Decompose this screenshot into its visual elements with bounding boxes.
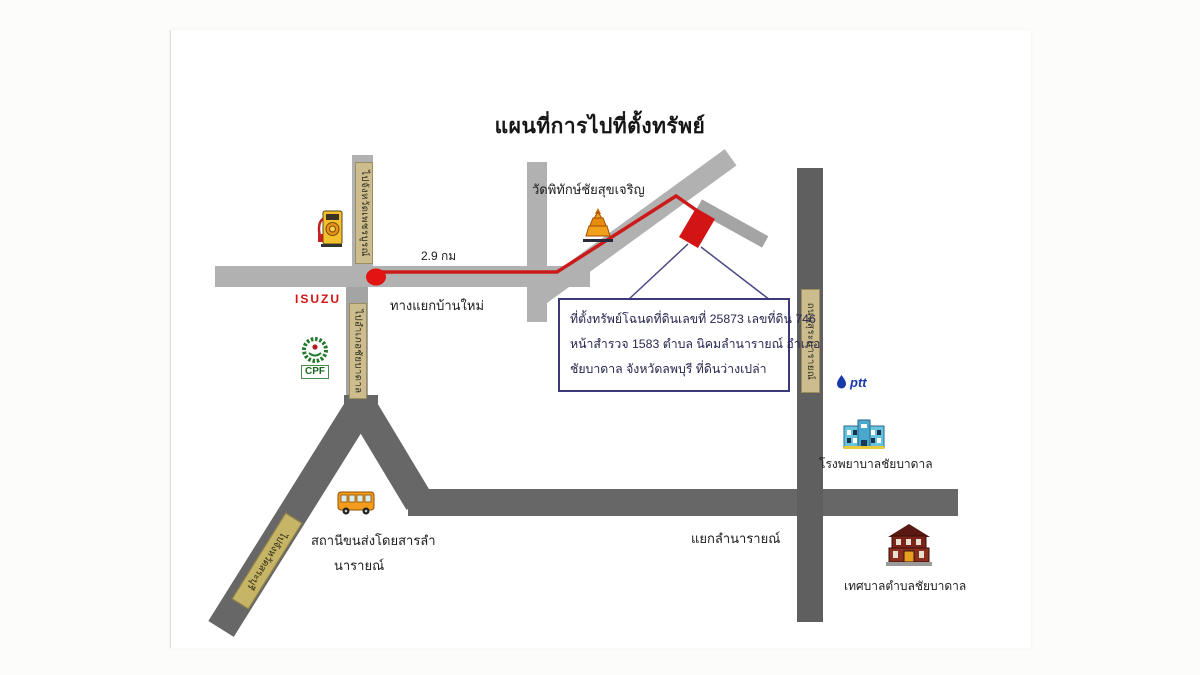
property-info-line2: หน้าสำรวจ 1583 ตำบล นิคมลำนารายณ์ อำเภอ [570, 332, 778, 357]
scanned-map-document: แผนที่การไปที่ตั้งทรัพย์ ไปจังหวัดเพชรบู… [0, 0, 1200, 675]
callout-line-left [628, 244, 688, 300]
ptt-flame-icon [836, 374, 847, 391]
banmai-junction-label: ทางแยกบ้านใหม่ [390, 295, 484, 316]
cpf-logo: CPF [296, 335, 334, 379]
municipality-label: เทศบาลตำบลชัยบาดาล [844, 577, 966, 596]
lamnarai-junction-label: แยกลำนารายณ์ [691, 528, 780, 549]
ptt-logo-text: ptt [850, 375, 867, 390]
isuzu-logo-text: ISUZU [295, 292, 341, 306]
cpf-logo-text: CPF [301, 365, 329, 379]
temple-label: วัดพิทักษ์ชัยสุขเจริญ [532, 179, 645, 200]
gas-station-icon [317, 209, 344, 248]
property-info-box: ที่ตั้งทรัพย์โฉนดที่ดินเลขที่ 25873 เลขท… [558, 298, 790, 392]
temple-icon [582, 207, 614, 243]
bus-terminal-label-line2: นารายณ์ [334, 555, 384, 576]
bus-icon [336, 489, 376, 516]
property-marker [679, 208, 715, 248]
distance-label: 2.9 กม [421, 247, 456, 266]
hospital-icon [842, 416, 886, 452]
cpf-wreath-icon [296, 335, 334, 365]
property-info-line1: ที่ตั้งทรัพย์โฉนดที่ดินเลขที่ 25873 เลขท… [570, 307, 778, 332]
callout-line-right [701, 247, 770, 300]
municipality-icon [884, 523, 934, 567]
hospital-label: โรงพยาบาลชัยบาดาล [819, 455, 933, 474]
ptt-logo: ptt [836, 374, 867, 391]
bus-terminal-label-line1: สถานีขนส่งโดยสารลำ [311, 530, 436, 551]
route-start-dot [366, 269, 386, 286]
property-info-line3: ชัยบาดาล จังหวัดลพบุรี ที่ดินว่างเปล่า [570, 357, 778, 382]
